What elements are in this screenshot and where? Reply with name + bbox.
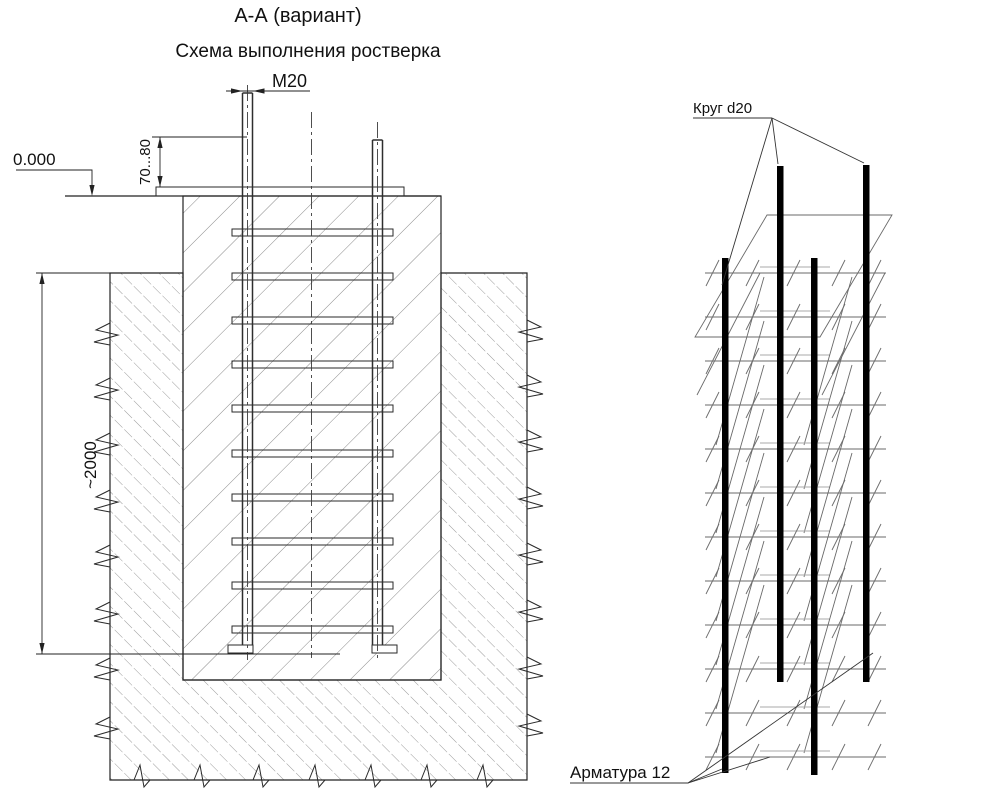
cage-bar	[777, 166, 784, 682]
technical-drawing: М20 0.000 70...80 ~2000	[0, 0, 1000, 800]
cage-bar	[811, 258, 818, 775]
zero-level-mark: 0.000	[13, 150, 95, 196]
grillage-section-drawing: М20 0.000 70...80 ~2000	[13, 71, 543, 787]
section-title: А-А (вариант)	[234, 5, 361, 27]
anchor-foot-left	[228, 645, 253, 653]
anchor-foot-right	[372, 645, 397, 653]
cage-bar	[722, 258, 729, 773]
protrusion-dim-label: 70...80	[137, 139, 154, 185]
depth-dim-label: ~2000	[81, 441, 100, 489]
cage-bar	[863, 165, 870, 682]
rebar-callout: Арматура 12	[570, 653, 873, 783]
anchor-cage-drawing: Круг d20 Арматура 12	[570, 100, 892, 783]
cage-frame-slant	[822, 273, 885, 395]
circle-callout-label: Круг d20	[693, 100, 752, 117]
dim-m20-label: М20	[272, 71, 307, 91]
dimension-protrusion: 70...80	[137, 137, 247, 187]
zero-level-label: 0.000	[13, 150, 56, 169]
base-plate	[156, 187, 404, 196]
drawing-canvas: М20 0.000 70...80 ~2000	[0, 0, 1000, 800]
grillage-block	[183, 196, 441, 680]
cage-lattice	[705, 260, 886, 770]
scheme-title: Схема выполнения ростверка	[175, 41, 441, 62]
dimension-m20: М20	[226, 71, 310, 94]
rebar-callout-label: Арматура 12	[570, 763, 670, 782]
